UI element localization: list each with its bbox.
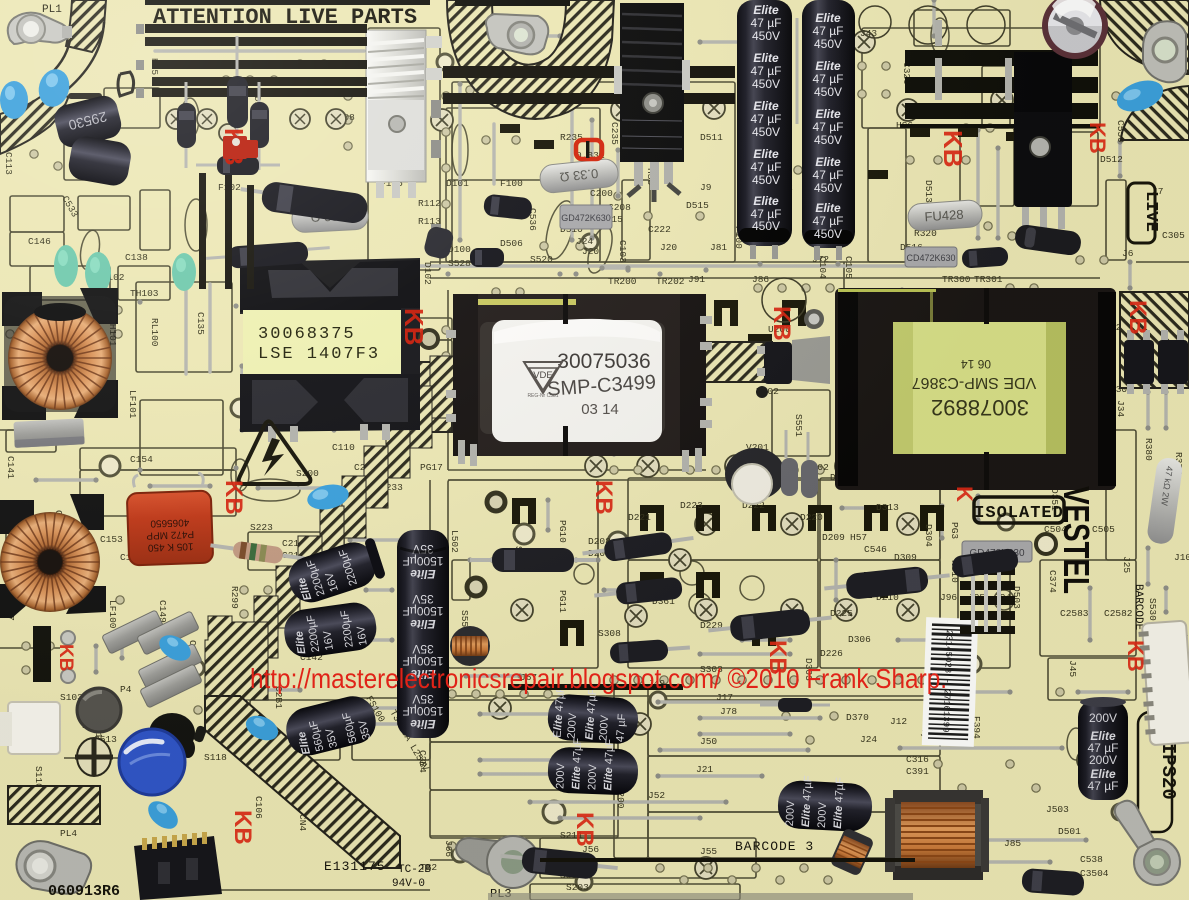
svg-text:KB: KB xyxy=(220,480,247,515)
svg-text:KB: KB xyxy=(399,308,429,346)
svg-text:KB: KB xyxy=(590,480,617,515)
svg-text:KB: KB xyxy=(571,812,598,847)
svg-text:KB: KB xyxy=(938,130,968,168)
svg-text:KB: KB xyxy=(229,810,256,845)
svg-text:http://masterelectronicsrepair: http://masterelectronicsrepair.blogspot.… xyxy=(250,663,947,694)
svg-text:KB: KB xyxy=(1123,640,1148,672)
svg-text:KB: KB xyxy=(55,644,76,671)
svg-text:K: K xyxy=(952,486,977,502)
svg-text:KB: KB xyxy=(1124,300,1151,335)
svg-text:KB: KB xyxy=(768,306,795,341)
svg-text:KB: KB xyxy=(1085,122,1110,154)
